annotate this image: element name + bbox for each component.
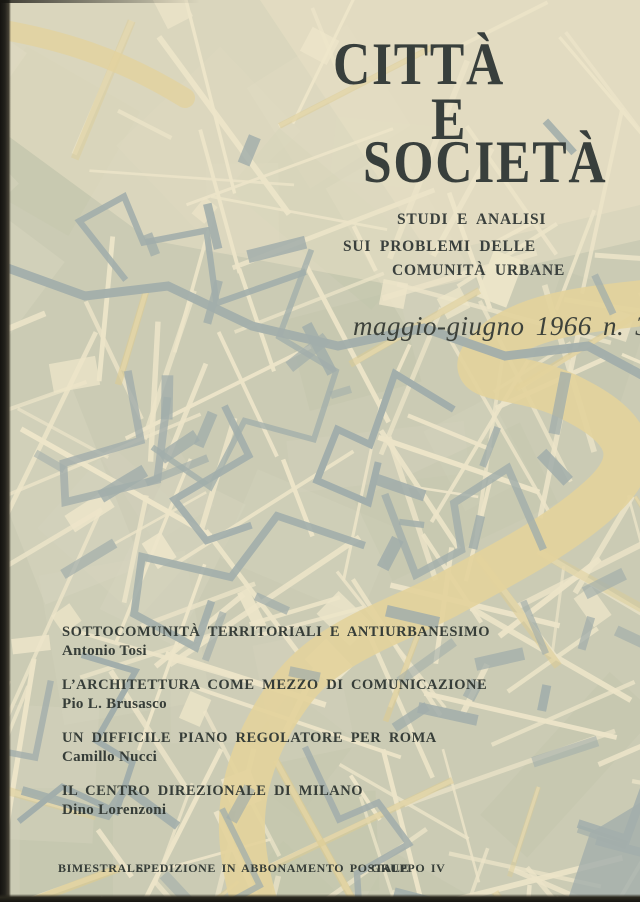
footer-group: GRUPPO IV <box>371 861 445 876</box>
subtitle-line-3: COMUNITÀ URBANE <box>392 263 565 279</box>
article-entry: L’ARCHITETTURA COME MEZZO DI COMUNICAZIO… <box>62 675 490 714</box>
magazine-cover: CITTÀ E SOCIETÀ STUDI E ANALISI SUI PROB… <box>0 0 640 902</box>
footer-frequency: BIMESTRALE <box>58 861 144 876</box>
footer-line: BIMESTRALE SPEDIZIONE IN ABBONAMENTO POS… <box>0 861 640 877</box>
article-author: Camillo Nucci <box>62 748 490 767</box>
subtitle-line-2: SUI PROBLEMI DELLE <box>343 239 536 255</box>
article-list: SOTTOCOMUNITÀ TERRITORIALI E ANTIURBANES… <box>62 622 490 834</box>
book-edge-top-shadow <box>0 0 200 3</box>
title-line-3: SOCIETÀ <box>363 132 607 192</box>
book-edge-left-shadow <box>0 0 11 902</box>
article-title: IL CENTRO DIREZIONALE DI MILANO <box>62 781 490 801</box>
book-edge-bottom-shadow <box>0 894 640 902</box>
subtitle-line-1: STUDI E ANALISI <box>397 212 546 228</box>
article-author: Antonio Tosi <box>62 642 490 661</box>
article-entry: SOTTOCOMUNITÀ TERRITORIALI E ANTIURBANES… <box>62 622 490 661</box>
issue-date: maggio-giugno 1966 n. 3 <box>353 311 640 341</box>
title-line-1: CITTÀ <box>333 34 505 94</box>
article-author: Pio L. Brusasco <box>62 695 490 714</box>
article-title: UN DIFFICILE PIANO REGOLATORE PER ROMA <box>62 728 490 748</box>
article-entry: UN DIFFICILE PIANO REGOLATORE PER ROMA C… <box>62 728 490 767</box>
article-title: L’ARCHITETTURA COME MEZZO DI COMUNICAZIO… <box>62 675 490 695</box>
article-entry: IL CENTRO DIREZIONALE DI MILANO Dino Lor… <box>62 781 490 820</box>
article-author: Dino Lorenzoni <box>62 801 490 820</box>
article-title: SOTTOCOMUNITÀ TERRITORIALI E ANTIURBANES… <box>62 622 490 642</box>
footer-postal-note: SPEDIZIONE IN ABBONAMENTO POSTALE <box>136 861 409 876</box>
